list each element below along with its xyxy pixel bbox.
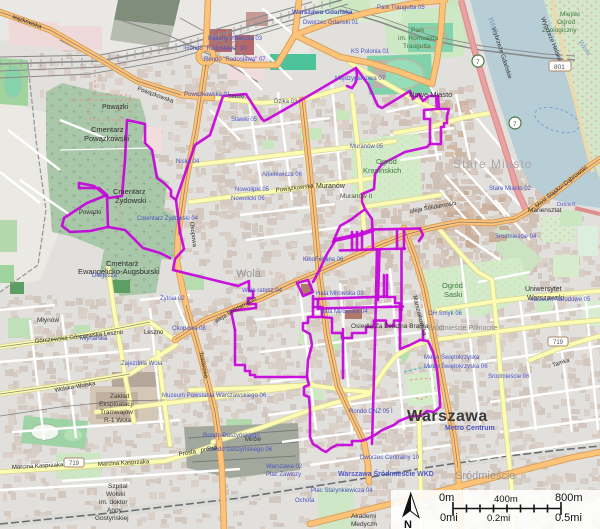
svg-text:Muranów: Muranów <box>316 183 346 190</box>
svg-text:Plac Starynkiewicza 04: Plac Starynkiewicza 04 <box>311 488 373 494</box>
svg-text:Akademi: Akademi <box>351 513 376 520</box>
svg-text:Muranów II: Muranów II <box>340 193 372 200</box>
svg-text:0mi: 0mi <box>440 512 458 524</box>
svg-text:Gostyńskiej: Gostyńskiej <box>95 515 129 522</box>
svg-text:Muzeum Narodowe 05: Muzeum Narodowe 05 <box>530 297 591 303</box>
svg-text:0.5mi: 0.5mi <box>555 512 582 524</box>
svg-text:Powązkowski: Powązkowski <box>84 134 129 143</box>
svg-text:Długosza: Długosza <box>92 273 118 279</box>
svg-text:7: 7 <box>476 59 480 66</box>
svg-text:Wola: Wola <box>236 268 262 280</box>
svg-text:Hala Mirowska 04: Hala Mirowska 04 <box>320 309 368 315</box>
svg-text:KinoFemina 06: KinoFemina 06 <box>303 257 344 263</box>
svg-text:Plac Zawiszy: Plac Zawiszy <box>266 472 301 478</box>
svg-text:OH Smyk 06: OH Smyk 06 <box>428 311 463 317</box>
svg-text:Rondo "Radosława" 07: Rondo "Radosława" 07 <box>204 57 266 63</box>
svg-text:Uniwersytet: Uniwersytet <box>525 286 562 293</box>
svg-text:Mariensztat: Mariensztat <box>528 207 562 214</box>
svg-text:Śródmieście: Śródmieście <box>455 469 516 482</box>
svg-text:Park: Park <box>411 27 425 34</box>
svg-text:Warszawa 02: Warszawa 02 <box>266 464 303 470</box>
svg-text:0.2mi: 0.2mi <box>487 513 510 524</box>
svg-text:Miejski: Miejski <box>560 11 580 18</box>
svg-text:Muranów 05: Muranów 05 <box>350 144 384 150</box>
svg-text:Cmentarz Żydowski 04: Cmentarz Żydowski 04 <box>137 215 199 222</box>
svg-text:Ogród: Ogród <box>376 157 397 166</box>
svg-text:Metro Świętokrzyska: Metro Świętokrzyska <box>424 353 480 361</box>
svg-text:Ewangelicko-Augsburski: Ewangelicko-Augsburski <box>78 267 160 276</box>
svg-text:Traugutta: Traugutta <box>403 43 431 50</box>
svg-text:Krasińskich: Krasińskich <box>363 166 401 175</box>
svg-text:Metro Centrum: Metro Centrum <box>445 425 495 432</box>
svg-text:7: 7 <box>513 121 517 128</box>
svg-text:Okopowa 08: Okopowa 08 <box>172 326 206 332</box>
svg-text:Warszawa: Warszawa <box>407 408 488 425</box>
svg-text:Powązki: Powązki <box>79 210 101 216</box>
svg-text:Dzica 0: Dzica 0 <box>557 202 575 208</box>
svg-text:Anny: Anny <box>107 507 123 514</box>
svg-text:Srodmieście 06: Srodmieście 06 <box>488 374 530 380</box>
svg-text:Powązkowska 01: Powązkowska 01 <box>184 92 231 98</box>
svg-text:Nowolicki 06: Nowolicki 06 <box>231 196 265 202</box>
svg-text:Stare Miasto 02: Stare Miasto 02 <box>489 186 532 192</box>
svg-text:Medyczn: Medyczn <box>351 521 377 528</box>
svg-text:Rondo "Radosława" 10: Rondo "Radosława" 10 <box>185 46 247 52</box>
svg-text:Szpital: Szpital <box>108 483 128 490</box>
svg-text:Rondo Daszyńskiego: Rondo Daszyńskiego <box>203 433 260 439</box>
svg-text:Park Traugutta 05: Park Traugutta 05 <box>377 5 425 11</box>
svg-text:Srodmieście 04: Srodmieście 04 <box>495 234 537 240</box>
svg-text:Anielewicza 06: Anielewicza 06 <box>262 172 303 178</box>
svg-text:N: N <box>404 519 412 529</box>
svg-text:Hala Mirowska 03: Hala Mirowska 03 <box>316 291 364 297</box>
svg-text:Rondo ONZ 05 I: Rondo ONZ 05 I <box>349 409 393 415</box>
svg-text:Żytnia 02: Żytnia 02 <box>160 295 185 302</box>
svg-text:Baseny Inflancka 03: Baseny Inflancka 03 <box>208 36 263 42</box>
svg-text:Dworzec Gdański 01: Dworzec Gdański 01 <box>303 20 359 26</box>
svg-text:Nowolipki 05: Nowolipki 05 <box>235 187 270 193</box>
svg-text:Muzeum Powstania Warszawskiego: Muzeum Powstania Warszawskiego 06 <box>162 393 267 399</box>
svg-text:Stawki: Stawki <box>228 94 244 100</box>
svg-text:Śródmieście Północne: Śródmieście Północne <box>428 323 498 332</box>
svg-text:Zajezdnia Wola: Zajezdnia Wola <box>121 361 163 367</box>
svg-text:Dzika 03: Dzika 03 <box>274 99 298 105</box>
svg-text:Stare Miasto: Stare Miasto <box>453 157 532 171</box>
svg-text:Ogród: Ogród <box>442 281 463 290</box>
svg-text:Wola ratusz 04: Wola ratusz 04 <box>242 288 283 294</box>
svg-text:719: 719 <box>69 461 80 467</box>
svg-text:Powązki: Powązki <box>102 104 129 111</box>
svg-text:Międzyparkowa 07: Międzyparkowa 07 <box>335 76 386 82</box>
svg-text:801: 801 <box>554 64 565 71</box>
svg-text:Zakład: Zakład <box>110 393 130 400</box>
svg-text:Niska 04: Niska 04 <box>176 159 200 165</box>
svg-text:Metro Świętokrzyska 06: Metro Świętokrzyska 06 <box>424 362 488 370</box>
svg-text:Tramwajów: Tramwajów <box>100 409 133 416</box>
svg-text:Ochota: Ochota <box>295 498 315 504</box>
svg-text:R-1 Wola: R-1 Wola <box>104 417 131 424</box>
svg-text:Warszawa Śródmieście WKD: Warszawa Śródmieście WKD <box>338 469 434 478</box>
svg-text:0m: 0m <box>439 492 454 504</box>
svg-text:400m: 400m <box>494 494 518 505</box>
svg-text:Żydowski: Żydowski <box>115 196 147 205</box>
svg-text:im. doktor: im. doktor <box>99 499 128 506</box>
svg-text:Leszno: Leszno <box>144 330 164 336</box>
svg-text:Ogród: Ogród <box>557 19 575 26</box>
svg-text:719: 719 <box>553 340 564 346</box>
svg-text:Cmentarz: Cmentarz <box>91 125 124 134</box>
svg-text:Stawki 05: Stawki 05 <box>231 117 258 123</box>
svg-text:Saski: Saski <box>444 290 463 299</box>
svg-text:Młynów: Młynów <box>37 317 59 324</box>
svg-text:Nowe Miasto: Nowe Miasto <box>409 90 452 99</box>
svg-text:800m: 800m <box>555 492 583 504</box>
svg-text:KS Polonia 01: KS Polonia 01 <box>351 49 390 55</box>
svg-text:Eksploatacji: Eksploatacji <box>99 401 134 408</box>
svg-text:Dworzec Centralny 10: Dworzec Centralny 10 <box>360 455 420 461</box>
svg-text:Warszawa Gdańska: Warszawa Gdańska <box>292 9 353 16</box>
svg-text:Cmentarz: Cmentarz <box>113 187 146 196</box>
svg-text:Wolski: Wolski <box>106 491 125 498</box>
svg-text:Osiedle Za Żelazna Brama: Osiedle Za Żelazna Brama <box>351 321 429 330</box>
svg-text:im. Romualda: im. Romualda <box>398 35 438 42</box>
